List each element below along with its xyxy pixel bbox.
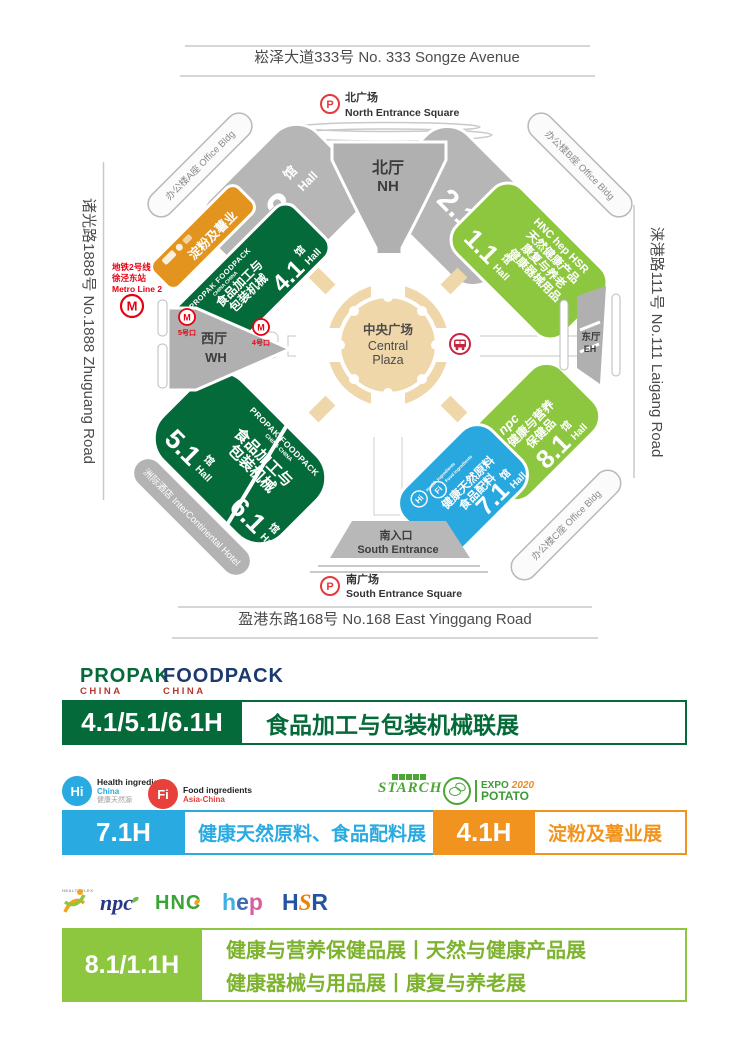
- fi-line2: Asia-China: [183, 795, 252, 804]
- hnc-logo: HNC: [155, 892, 213, 915]
- north-lobby-en: NH: [377, 178, 399, 195]
- bar2-code: 7.1H: [62, 810, 185, 855]
- hep-e: e: [236, 889, 249, 915]
- starch-logo: STARCH: [378, 774, 442, 797]
- fi-logo: Fi Food ingredients Asia-China: [148, 779, 252, 809]
- south-parking-p: P: [326, 581, 333, 593]
- bar4-line2: 健康器械与用品展丨康复与养老展: [226, 967, 526, 996]
- propak-name: PROPAK: [80, 666, 170, 686]
- legend-bar-propak: 4.1/5.1/6.1H 食品加工与包装机械联展: [62, 700, 687, 745]
- potato-circle-icon: [443, 777, 471, 805]
- south-entrance-en: South Entrance: [357, 544, 438, 556]
- healthplex-logo: HEALTHPLEX: [62, 888, 92, 893]
- bar4-textcol: 健康与营养保健品展丨天然与健康产品展 健康器械与用品展丨康复与养老展: [202, 928, 687, 1002]
- propak-sub: CHINA: [80, 686, 170, 697]
- foodpack-logo: FOODPACK CHINA: [163, 666, 284, 697]
- plaza-cn: 中央广场: [363, 322, 413, 337]
- east-lobby-cn: 东厅: [581, 331, 601, 343]
- bar1-code: 4.1/5.1/6.1H: [62, 700, 242, 745]
- svg-text:M: M: [127, 299, 138, 314]
- bus-stop-icon: [450, 334, 470, 354]
- bar4-line1: 健康与营养保健品展丨天然与健康产品展: [226, 934, 586, 963]
- hsr-logo: HSR: [282, 889, 328, 916]
- office-bldg-c-label: 办公楼C座 Office Bldg: [529, 488, 604, 563]
- npc-name: npc: [100, 890, 133, 915]
- hep-logo: hep: [222, 889, 263, 916]
- legend-bar-starch: 4.1H 淀粉及薯业展: [433, 810, 687, 855]
- propak-logo: PROPAK CHINA: [80, 666, 170, 697]
- metro-station-icon: M: [121, 295, 143, 317]
- west-lobby-en: WH: [205, 350, 227, 365]
- north-lobby-cn: 北厅: [372, 159, 404, 177]
- hsr-h: H: [282, 889, 299, 915]
- north-parking-icon: P: [321, 95, 339, 113]
- office-bldg-b-label: 办公楼B座 Office Bldg: [542, 128, 616, 202]
- west-road-label-group: 诸光路1888号 No.1888 Zhuguang Road: [80, 198, 97, 464]
- plaza-en1: Central: [368, 339, 408, 353]
- south-entrance-cn: 南入口: [380, 528, 413, 542]
- svg-text:M: M: [183, 313, 191, 323]
- plaza-en2: Plaza: [372, 353, 403, 367]
- potato-word: POTATO: [481, 791, 534, 802]
- legend-bar-health: 8.1/1.1H 健康与营养保健品展丨天然与健康产品展 健康器械与用品展丨康复与…: [62, 928, 687, 1002]
- npc-leaf-icon: [132, 896, 140, 903]
- south-square-en: South Entrance Square: [346, 588, 462, 600]
- hsr-r: R: [311, 889, 328, 915]
- east-road-label: 涞港路111号 No.111 Laigang Road: [648, 227, 665, 458]
- venue-map: 崧泽大道333号 No. 333 Songze Avenue 诸光路1888号 …: [0, 0, 740, 650]
- hi-circle: Hi: [62, 776, 92, 806]
- metro-exit5-label: 5号口: [178, 328, 196, 337]
- north-parking-p: P: [326, 99, 333, 111]
- south-square-cn: 南广场: [346, 572, 379, 586]
- west-entrance-step-1: [158, 300, 167, 336]
- east-entrance-step-1: [560, 300, 568, 370]
- metro-label-1: 地铁2号线: [112, 262, 151, 272]
- metro-exit4-icon: M: [253, 319, 269, 335]
- starch-name: STARCH: [378, 780, 442, 797]
- venue-map-page: 崧泽大道333号 No. 333 Songze Avenue 诸光路1888号 …: [0, 0, 740, 1046]
- east-lobby-en: EH: [584, 344, 597, 354]
- north-square-en: North Entrance Square: [345, 107, 460, 119]
- bar1-text: 食品加工与包装机械联展: [242, 700, 687, 745]
- expo-potato-logo: EXPO 2020 POTATO: [443, 777, 534, 805]
- legend-bar-ingredients: 7.1H 健康天然原料、食品配料展: [62, 810, 437, 855]
- bar3-text: 淀粉及薯业展: [535, 810, 687, 855]
- west-entrance-step-2: [158, 344, 167, 388]
- north-square-cn: 北广场: [345, 90, 378, 104]
- east-road-label-group: 涞港路111号 No.111 Laigang Road: [648, 227, 665, 458]
- south-parking-icon: P: [321, 577, 339, 595]
- healthplex-person-icon: [62, 888, 88, 915]
- west-lobby-cn: 西厅: [201, 331, 227, 346]
- metro-label-3: Metro Line 2: [112, 284, 162, 294]
- south-road-label: 盈港东路168号 No.168 East Yinggang Road: [238, 611, 532, 628]
- north-road-label: 崧泽大道333号 No. 333 Songze Avenue: [254, 49, 520, 66]
- fi-circle: Fi: [148, 779, 178, 809]
- foodpack-sub: CHINA: [163, 686, 284, 697]
- metro-exit4-label: 4号口: [252, 338, 270, 347]
- bar3-code: 4.1H: [433, 810, 535, 855]
- east-entrance-step-2: [612, 294, 620, 376]
- metro-exit5-icon: M: [179, 309, 195, 325]
- foodpack-name: FOODPACK: [163, 666, 284, 686]
- bar2-text: 健康天然原料、食品配料展: [185, 810, 437, 855]
- hsr-s: S: [299, 890, 312, 915]
- hep-h: h: [222, 889, 236, 915]
- svg-text:M: M: [257, 323, 265, 333]
- fi-line1: Food ingredients: [183, 785, 252, 795]
- npc-logo: npc: [100, 890, 144, 916]
- hep-p: p: [249, 889, 263, 915]
- west-road-label: 诸光路1888号 No.1888 Zhuguang Road: [80, 198, 97, 464]
- bar4-code: 8.1/1.1H: [62, 928, 202, 1002]
- metro-label-2: 徐泾东站: [111, 273, 147, 283]
